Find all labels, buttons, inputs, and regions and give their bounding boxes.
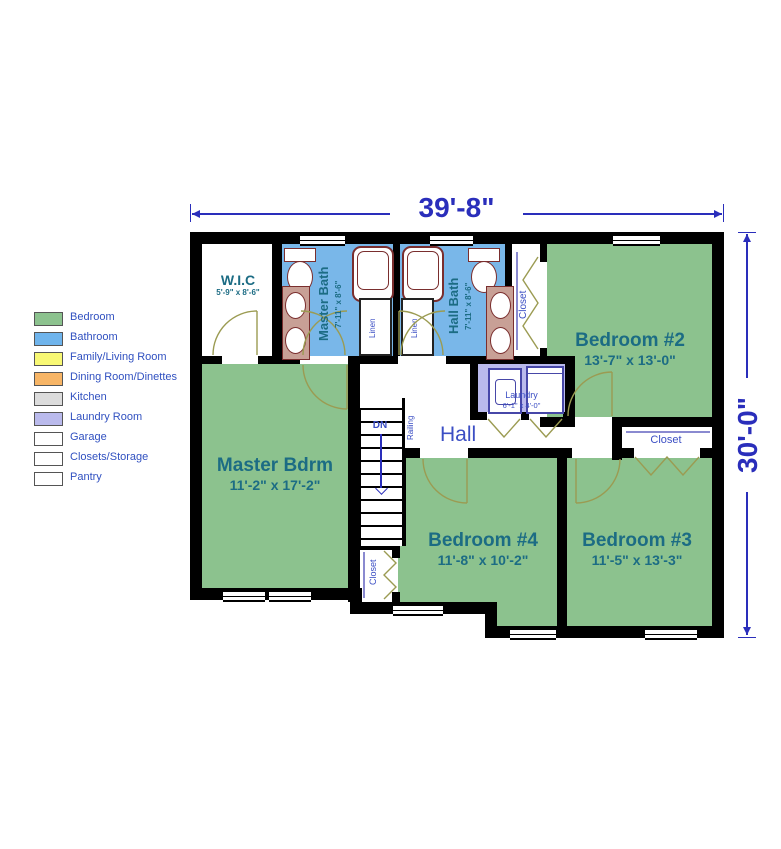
wall xyxy=(700,448,712,458)
legend-swatch-bathroom xyxy=(34,332,63,346)
hall-bath-label: Hall Bath xyxy=(446,254,464,358)
bathtub-icon xyxy=(402,246,444,302)
bedroom-3-label: Bedroom #3 11'-5" x 13'-3" xyxy=(562,530,712,568)
linen-label: Linen xyxy=(368,304,382,352)
legend-label: Family/Living Room xyxy=(70,351,167,363)
legend-label: Closets/Storage xyxy=(70,451,148,463)
door-arc-wic xyxy=(212,310,258,356)
legend-label: Pantry xyxy=(70,471,102,483)
legend-swatch-dining xyxy=(34,372,63,386)
height-dimension-text: 30'-0" xyxy=(732,378,762,492)
closet-rod xyxy=(363,552,365,598)
dimension-line xyxy=(523,213,722,215)
bathtub-inner xyxy=(357,251,389,290)
legend-swatch-bedroom xyxy=(34,312,63,326)
wic-label: W.I.C 5'-9" x 8'-6" xyxy=(205,272,271,297)
dimension-line xyxy=(746,492,748,635)
sink-icon xyxy=(490,292,511,319)
sink-icon xyxy=(490,327,511,354)
bedroom-2-label: Bedroom #2 13'-7" x 13'-0" xyxy=(550,330,710,368)
room-size: 13'-7" x 13'-0" xyxy=(550,352,710,368)
window xyxy=(430,234,473,246)
hall-bath-size: 7'-11" x 8'-6" xyxy=(464,254,476,358)
legend-swatch-laundry xyxy=(34,412,63,426)
legend-swatch-pantry xyxy=(34,472,63,486)
legend-label: Bathroom xyxy=(70,331,118,343)
door-arc-hall-bath xyxy=(400,310,446,356)
wall xyxy=(470,356,478,412)
door-arc-bedroom-3 xyxy=(575,458,621,504)
wall xyxy=(540,244,547,262)
window xyxy=(223,590,265,602)
door-arc-bedroom-2 xyxy=(567,371,613,417)
dimension-line xyxy=(746,234,748,378)
bedroom-4-label: Bedroom #4 11'-8" x 10'-2" xyxy=(408,530,558,568)
closet-rod xyxy=(626,431,710,433)
legend-label: Laundry Room xyxy=(70,411,142,423)
stairs-down-arrow xyxy=(380,434,382,488)
wall xyxy=(612,417,622,460)
width-dimension-text: 39'-8" xyxy=(390,192,523,224)
arrow-up-icon xyxy=(743,234,751,242)
wall xyxy=(540,348,547,356)
legend-swatch-kitchen xyxy=(34,392,63,406)
legend-label: Dining Room/Dinettes xyxy=(70,371,177,383)
window xyxy=(300,234,345,246)
bathtub-inner xyxy=(407,251,439,290)
toilet-icon xyxy=(284,248,316,262)
dimension-tick xyxy=(738,637,756,638)
master-bath-size: 7'-11" x 8'-6" xyxy=(334,252,346,356)
legend-swatch-family-living xyxy=(34,352,63,366)
bedroom-2-closet-label: Closet xyxy=(518,260,534,350)
window xyxy=(510,628,556,640)
dimension-tick xyxy=(723,204,724,222)
railing-label: Railing xyxy=(406,400,418,456)
window xyxy=(393,604,443,616)
legend-swatch-garage xyxy=(34,432,63,446)
bifold-door-icon xyxy=(383,550,398,600)
master-bdrm-label: Master Bdrm 11'-2" x 17'-2" xyxy=(200,455,350,493)
legend-label: Bedroom xyxy=(70,311,115,323)
room-size: 11'-2" x 17'-2" xyxy=(200,477,350,493)
room-name: Bedroom #4 xyxy=(408,530,558,552)
washer-panel-line xyxy=(528,373,562,374)
wall xyxy=(712,232,724,638)
window xyxy=(269,590,311,602)
bifold-door-icon xyxy=(487,418,563,438)
room-size: 11'-8" x 10'-2" xyxy=(408,552,558,568)
bedroom-4-closet-label: Closet xyxy=(368,550,382,594)
arrow-right-icon xyxy=(714,210,722,218)
legend-label: Kitchen xyxy=(70,391,107,403)
arrow-down-icon xyxy=(743,627,751,635)
room-name: W.I.C xyxy=(205,272,271,288)
room-name: Bedroom #3 xyxy=(562,530,712,552)
stairs-dn-label: DN xyxy=(362,420,398,431)
window xyxy=(645,628,697,640)
legend-label: Garage xyxy=(70,431,107,443)
wall xyxy=(190,356,222,364)
room-bedroom-4-bump xyxy=(497,602,557,628)
laundry-size: 6'-1" x 4'-0" xyxy=(478,401,565,410)
hall-label: Hall xyxy=(440,423,476,447)
window xyxy=(613,234,660,246)
wall xyxy=(272,244,282,356)
room-size: 11'-5" x 13'-3" xyxy=(562,552,712,568)
legend-swatch-closets xyxy=(34,452,63,466)
room-name: Master Bdrm xyxy=(200,455,350,477)
wall xyxy=(613,417,712,427)
room-size: 5'-9" x 8'-6" xyxy=(205,288,271,297)
vanity-icon xyxy=(486,286,514,360)
dimension-tick xyxy=(738,232,756,233)
bedroom-3-closet-label: Closet xyxy=(630,434,702,446)
arrow-left-icon xyxy=(192,210,200,218)
dimension-tick xyxy=(190,204,191,222)
railing xyxy=(402,398,405,468)
room-name: Bedroom #2 xyxy=(550,330,710,352)
wall xyxy=(470,412,487,420)
bathtub-icon xyxy=(352,246,394,302)
master-bath-label: Master Bath xyxy=(316,252,334,356)
laundry-label: Laundry xyxy=(478,390,565,400)
bifold-door-icon xyxy=(634,456,700,476)
wall xyxy=(190,232,202,600)
dimension-line xyxy=(192,213,390,215)
door-arc-master-bdrm xyxy=(302,364,348,410)
door-arc-bedroom-4 xyxy=(422,458,468,504)
